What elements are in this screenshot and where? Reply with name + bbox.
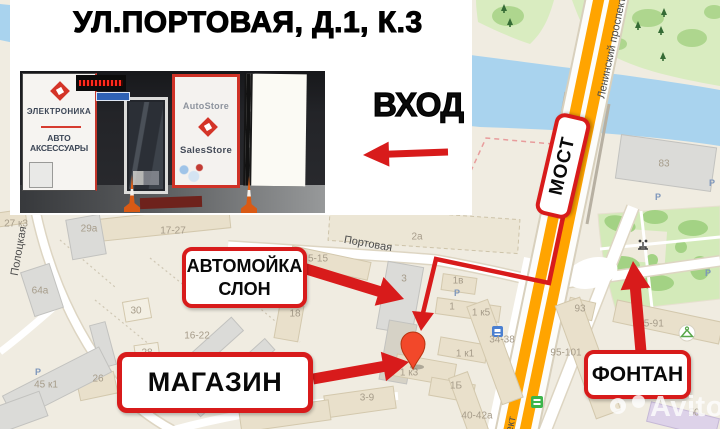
entrance-arrow xyxy=(363,142,448,167)
watermark-text: Avito xyxy=(650,391,720,424)
callout-text: МАГАЗИН xyxy=(148,367,282,398)
route-line xyxy=(423,203,566,313)
avito-logo-icon xyxy=(606,390,648,424)
callout-text: ФОНТАН xyxy=(592,363,683,387)
carwash-arrow xyxy=(301,263,404,306)
shop-arrow xyxy=(312,352,409,385)
callout-carwash: АВТОМОЙКА СЛОН xyxy=(182,247,307,308)
route-arrowhead xyxy=(412,311,434,331)
fountain-arrow xyxy=(621,261,651,353)
avito-map-screenshot: Ленинский проспект Ленинский проспект По… xyxy=(0,0,720,429)
callout-shop: МАГАЗИН xyxy=(117,352,313,413)
callout-text: АВТОМОЙКА xyxy=(187,255,303,278)
callout-text: МОСТ xyxy=(546,135,581,198)
avito-watermark: Avito xyxy=(606,390,720,424)
callout-text: СЛОН xyxy=(218,278,270,301)
